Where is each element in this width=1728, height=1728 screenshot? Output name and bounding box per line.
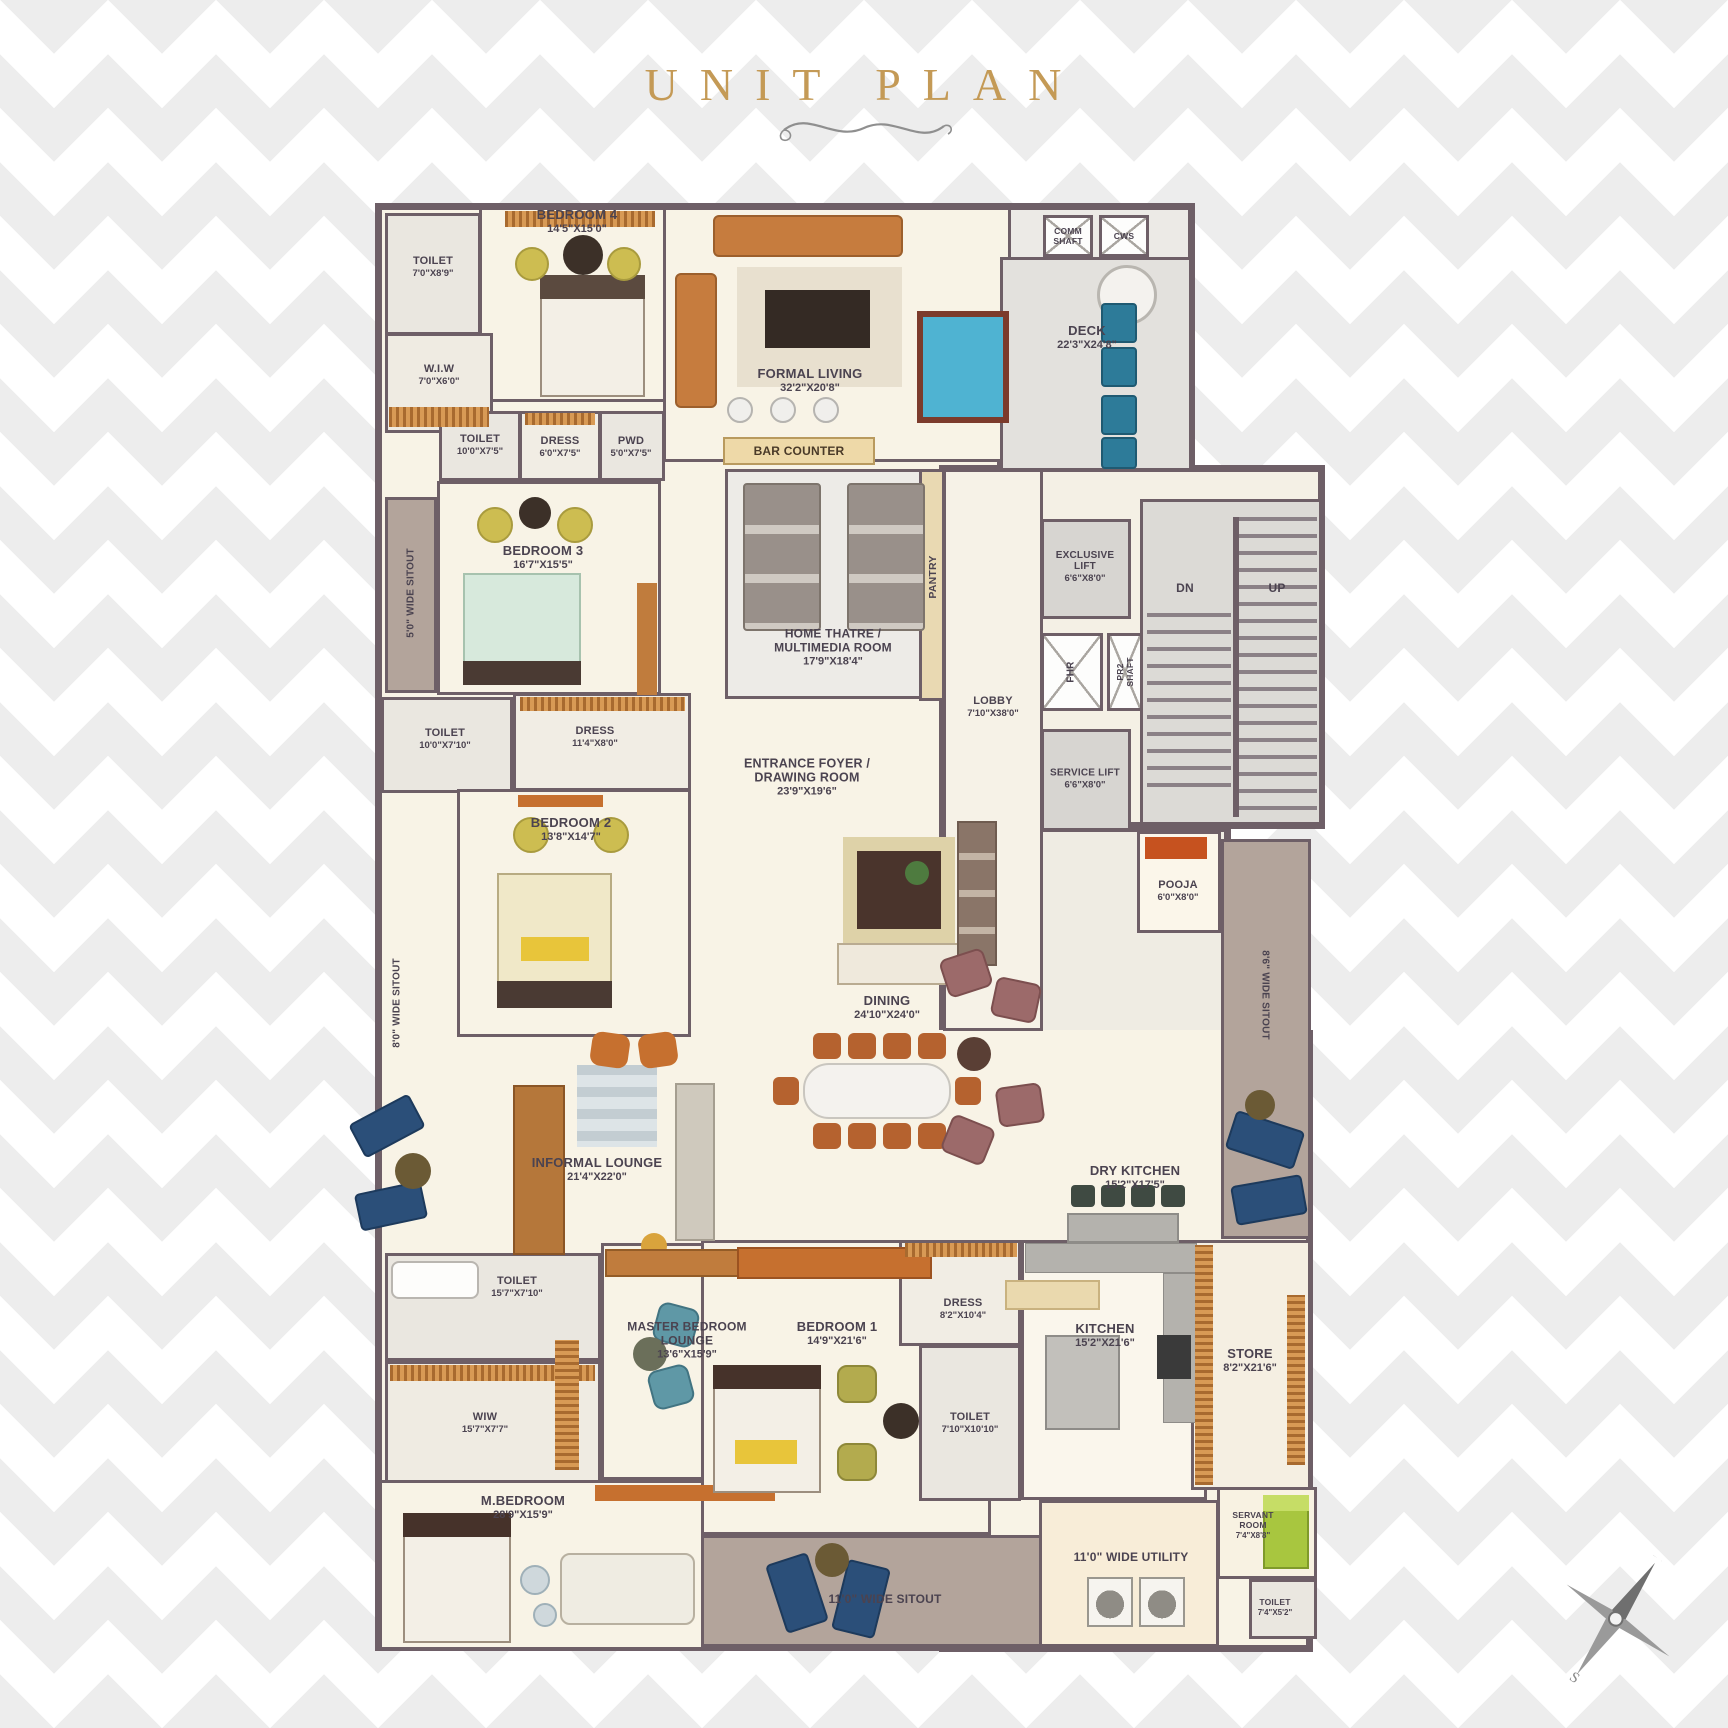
bedroom1-table: [883, 1403, 919, 1439]
label-home-theatre: HOME THATRE / MULTIMEDIA ROOM17'9"X18'4": [758, 627, 908, 668]
lounge-sofa: [675, 1083, 715, 1241]
label-pooja: POOJA6'0"X8'0": [1158, 879, 1199, 903]
label-dining: DINING24'10"X24'0": [854, 993, 920, 1021]
wiw-m-wardrobe-side: [555, 1340, 579, 1470]
svg-text:W: W: [1538, 1563, 1559, 1585]
bedroom2-wardrobe: [518, 795, 603, 807]
living-sofa-left: [675, 273, 717, 408]
label-wiw-m: WIW15'7"X7'7": [462, 1411, 508, 1435]
sitout86-table: [1245, 1090, 1275, 1120]
foyer-side-chairs: [957, 821, 997, 966]
dress-bed3-wardrobe: [525, 413, 595, 425]
label-wiw-bed4: W.I.W7'0"X6'0": [419, 363, 460, 387]
sitout8-table: [395, 1153, 431, 1189]
living-planter-1: [727, 397, 753, 423]
label-exclusive-lift: EXCLUSIVE LIFT6'6"X8'0": [1050, 550, 1120, 584]
dining-chair-t1: [813, 1033, 841, 1059]
label-lobby: LOBBY7'10"X38'0": [967, 695, 1019, 719]
bedroom1-headboard: [713, 1365, 821, 1389]
bedroom4-chair-left: [515, 247, 549, 281]
label-bedroom1: BEDROOM 114'9"X21'6": [797, 1319, 878, 1347]
deck-lounger-3: [1101, 395, 1137, 435]
dining-chair-b3: [883, 1123, 911, 1149]
label-toilet-bed3: TOILET10'0"X7'5": [457, 433, 503, 457]
living-planter-2: [770, 397, 796, 423]
label-sitout-86: 8'6" WIDE SITOUT: [1260, 950, 1271, 1040]
dining-chair-t3: [883, 1033, 911, 1059]
label-sitout-8: 8'0" WIDE SITOUT: [392, 958, 403, 1048]
label-toilet-bed1: TOILET7'10"X10'10": [942, 1411, 999, 1435]
label-m-bedroom: M.BEDROOM28'9"X15'9": [481, 1493, 565, 1521]
toilet-m-tub: [391, 1261, 479, 1299]
dress-bed2-wardrobe: [520, 697, 685, 711]
label-sitout-11: 11'0" WIDE SITOUT: [828, 1592, 941, 1606]
utility-washer-1: [1087, 1577, 1133, 1627]
label-toilet-bed2: TOILET10'0"X7'10": [419, 727, 471, 751]
maroon-side-table: [957, 1037, 991, 1071]
label-toilet-servant: TOILET7'4"X5'2": [1258, 1597, 1293, 1617]
svg-text:N: N: [1650, 1542, 1672, 1566]
label-pwd: PWD5'0"X7'5": [611, 435, 652, 459]
page-title: UNIT PLAN: [0, 58, 1728, 111]
dining-table: [803, 1063, 951, 1119]
label-formal-living: FORMAL LIVING32'2"X20'8": [758, 366, 863, 394]
label-toilet-m: TOILET15'7"X7'10": [491, 1275, 543, 1299]
label-utility: 11'0" WIDE UTILITY: [1074, 1550, 1189, 1564]
label-deck: DECK22'3"X24'8": [1057, 323, 1117, 351]
room-deck: [1000, 257, 1192, 471]
label-dry-kitchen: DRY KITCHEN15'2"X17'5": [1090, 1163, 1180, 1191]
bedroom3-headboard: [463, 661, 581, 685]
bedroom3-chair-right: [557, 507, 593, 543]
foyer-plant: [905, 861, 929, 885]
theatre-recliner-bank-right: [847, 483, 925, 631]
lounge-chair-2: [637, 1031, 679, 1070]
bedroom2-throw: [521, 937, 589, 961]
flourish-icon: [764, 108, 964, 148]
dining-chair-right: [955, 1077, 981, 1105]
compass-icon: N E S W: [1515, 1518, 1716, 1721]
deck-lounger-2: [1101, 347, 1137, 387]
bedroom1-wardrobe: [737, 1247, 932, 1279]
store-shelf-left: [1195, 1245, 1213, 1485]
label-store: STORE8'2"X21'6": [1223, 1346, 1277, 1374]
living-planter-3: [813, 397, 839, 423]
dry-kitchen-island: [1067, 1213, 1179, 1243]
kitchen-counter-top: [1025, 1243, 1197, 1273]
label-entrance-foyer: ENTRANCE FOYER / DRAWING ROOM23'9"X19'6": [732, 757, 882, 798]
kitchen-stove: [1157, 1335, 1191, 1379]
room-sitout-11: [701, 1535, 1091, 1647]
m-bedroom-table-1: [520, 1565, 550, 1595]
label-pr2-shaft: PR2 SHAFT: [1115, 649, 1135, 695]
label-service-lift: SERVICE LIFT6'6"X8'0": [1046, 768, 1124, 791]
label-mbr-lounge: MASTER BEDROOM LOUNGE13'6"X15'9": [622, 1320, 752, 1361]
dining-chair-left: [773, 1077, 799, 1105]
label-cws: CWS: [1114, 231, 1134, 241]
bedroom3-chair-left: [477, 507, 513, 543]
label-bedroom3: BEDROOM 316'7"X15'5": [503, 543, 584, 571]
living-sofa-top: [713, 215, 903, 257]
svg-text:E: E: [1671, 1656, 1688, 1674]
dry-kitchen-counter: [1005, 1280, 1100, 1310]
bedroom4-chair-right: [607, 247, 641, 281]
label-dress-bed2: DRESS11'4"X8'0": [572, 725, 618, 749]
m-bedroom-sofa: [560, 1553, 695, 1625]
servant-pillow: [1263, 1495, 1309, 1511]
maroon-chair-3: [994, 1082, 1045, 1128]
label-fhr: FHR: [1066, 661, 1077, 682]
kitchen-island: [1045, 1335, 1120, 1430]
dining-chair-t2: [848, 1033, 876, 1059]
label-bedroom2: BEDROOM 213'8"X14'7": [531, 815, 612, 843]
bedroom2-headboard: [497, 981, 612, 1008]
label-pantry: PANTRY: [927, 555, 939, 598]
stairs-spine: [1233, 517, 1239, 817]
bedroom3-wardrobe: [637, 583, 657, 695]
label-bedroom4: BEDROOM 414'5"X15'0": [537, 207, 618, 235]
svg-text:S: S: [1566, 1669, 1582, 1687]
page-background: UNIT PLAN: [0, 0, 1728, 1728]
wiw-bed4-wardrobe: [389, 407, 489, 427]
m-bedroom-table-2: [533, 1603, 557, 1627]
dining-chair-b1: [813, 1123, 841, 1149]
bedroom4-table: [563, 235, 603, 275]
floor-plan: TOILET7'0"X8'9" BEDROOM 414'5"X15'0" W.I…: [345, 185, 1320, 1650]
label-servant: SERVANT ROOM7'4"X8'8": [1222, 1510, 1284, 1540]
utility-washer-2: [1139, 1577, 1185, 1627]
lounge-chair-1: [589, 1031, 631, 1070]
label-bar-counter: BAR COUNTER: [754, 444, 845, 458]
label-comm-shaft: COMM SHAFT: [1045, 226, 1091, 246]
pooja-altar: [1145, 837, 1207, 859]
bedroom1-throw: [735, 1440, 797, 1464]
label-informal-lounge: INFORMAL LOUNGE21'4"X22'0": [532, 1155, 663, 1183]
label-toilet-bed4: TOILET7'0"X8'9": [413, 255, 454, 279]
pool-table: [917, 311, 1009, 423]
stairs-flight-left: [1147, 613, 1231, 798]
theatre-recliner-bank-left: [743, 483, 821, 631]
label-stairs-up: UP: [1268, 581, 1285, 595]
label-dress-bed3: DRESS6'0"X7'5": [540, 435, 581, 459]
stairs-flight-right: [1239, 517, 1317, 817]
dining-chair-b2: [848, 1123, 876, 1149]
dining-chair-t4: [918, 1033, 946, 1059]
sitout11-table: [815, 1543, 849, 1577]
label-sitout-5: 5'0" WIDE SITOUT: [406, 548, 417, 638]
foyer-tv-unit: [857, 851, 941, 929]
bedroom1-chair-1: [837, 1365, 877, 1403]
store-shelf-right: [1287, 1295, 1305, 1465]
label-dress-bed1: DRESS8'2"X10'4": [940, 1297, 986, 1321]
bedroom1-chair-2: [837, 1443, 877, 1481]
dress-bed1-wardrobe: [905, 1243, 1017, 1257]
living-coffee-table: [765, 290, 870, 348]
label-kitchen: KITCHEN15'2"X21'6": [1075, 1321, 1135, 1349]
deck-lounger-4: [1101, 437, 1137, 469]
bedroom3-table: [519, 497, 551, 529]
label-stairs-dn: DN: [1176, 581, 1194, 595]
lounge-rug: [577, 1065, 657, 1147]
